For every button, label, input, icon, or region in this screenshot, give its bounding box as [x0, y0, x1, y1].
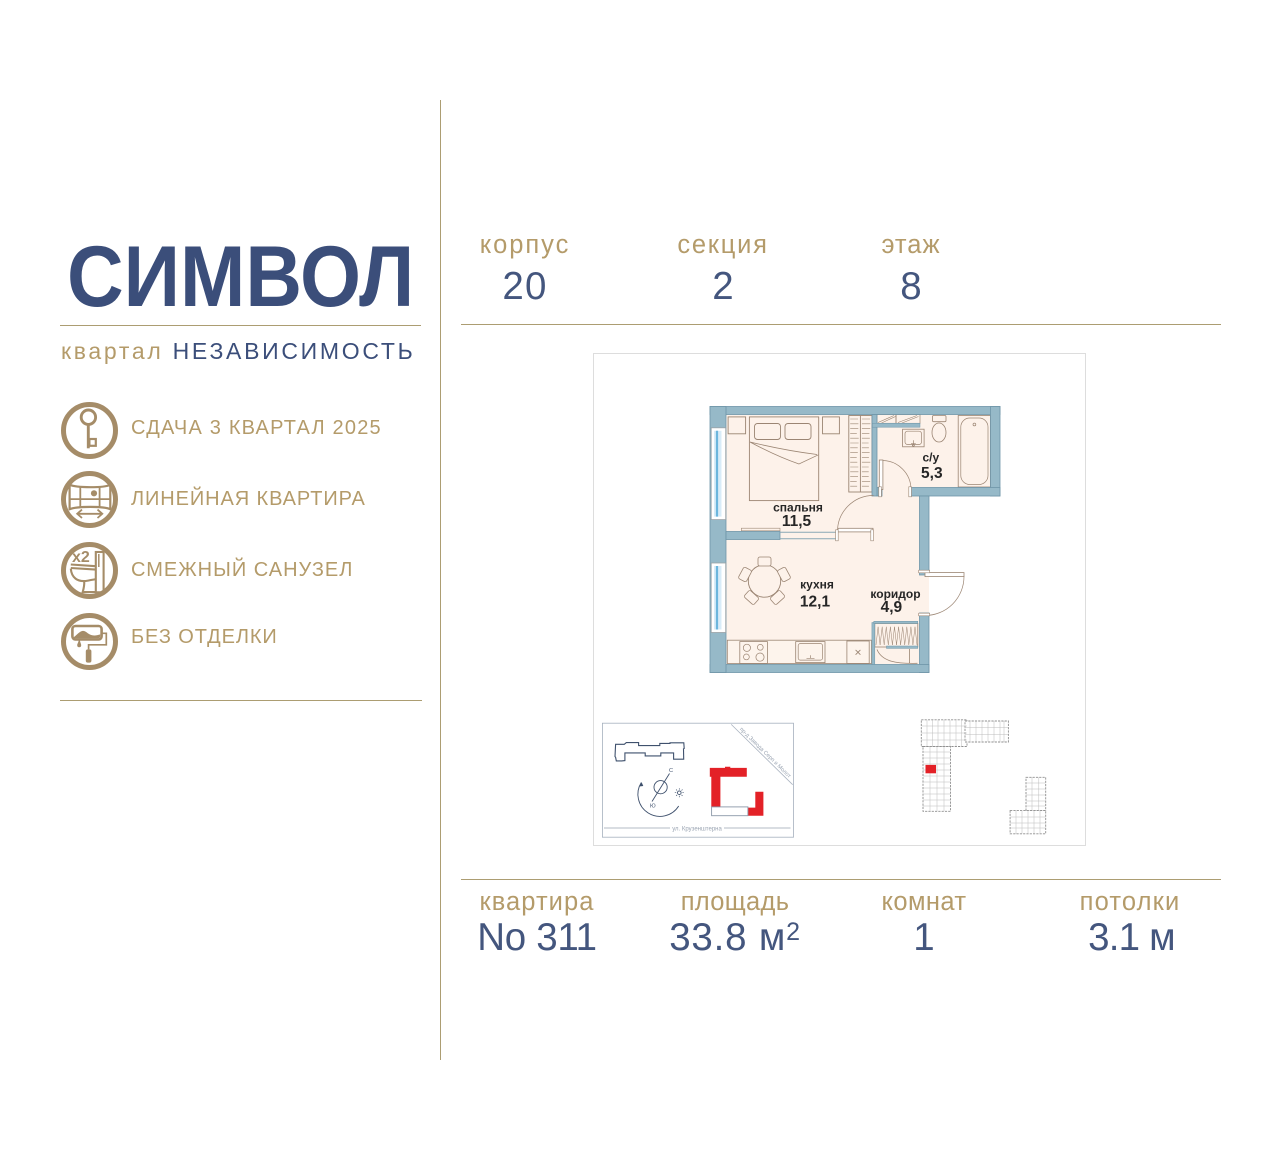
svg-text:ул. Крузенштерна: ул. Крузенштерна: [672, 827, 722, 833]
svg-text:x2: x2: [72, 549, 90, 566]
svg-text:кухня: кухня: [800, 577, 834, 591]
svg-text:Ю: Ю: [650, 804, 656, 810]
svg-text:12,1: 12,1: [800, 594, 831, 611]
svg-text:с/у: с/у: [922, 450, 939, 464]
svg-text:5,3: 5,3: [921, 465, 943, 482]
svg-text:4,9: 4,9: [881, 599, 903, 616]
svg-text:С: С: [669, 768, 673, 774]
svg-text:11,5: 11,5: [782, 513, 812, 530]
